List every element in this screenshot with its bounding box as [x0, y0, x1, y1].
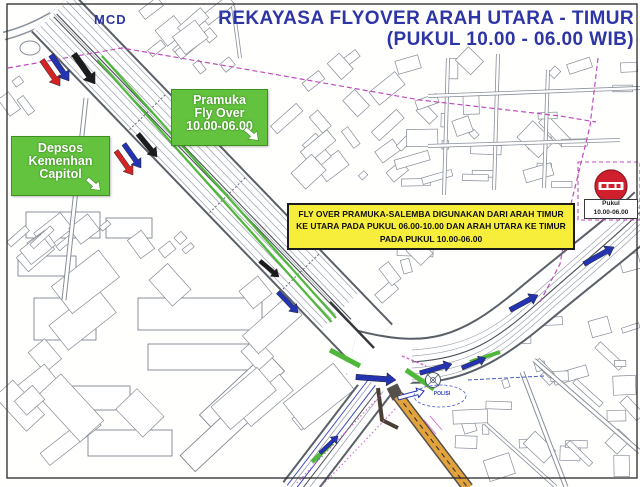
building-outline: [607, 410, 626, 421]
building-outline: [358, 171, 367, 180]
building-outline: [12, 76, 24, 87]
southeast-arrow-icon: [83, 175, 103, 193]
building-outline: [614, 360, 626, 366]
building-outline: [455, 435, 477, 448]
building-outline: [369, 72, 405, 106]
no-entry-caption: Pukul 10.00-06.00: [584, 199, 638, 219]
building-outline: [174, 231, 187, 244]
building-outline: [395, 55, 421, 75]
map-line: [522, 372, 566, 487]
building-outline: [88, 430, 172, 456]
building-outline: [463, 174, 489, 181]
building-outline: [17, 96, 35, 116]
building-outline: [309, 110, 331, 133]
building-outline: [588, 316, 612, 337]
building-outline: [548, 66, 560, 78]
building-outline: [455, 47, 483, 75]
southeast-arrow-icon: [241, 125, 261, 143]
building-outline: [193, 60, 206, 74]
map-line: [428, 88, 640, 96]
building-outline: [148, 40, 166, 57]
building-outline: [0, 92, 21, 116]
building-outline: [182, 243, 194, 254]
building-outline: [343, 90, 370, 117]
building-outline: [394, 150, 430, 169]
polisi-map-label: POLISI: [420, 391, 464, 397]
mcd-map-label: MCD: [94, 12, 127, 27]
building-outline: [614, 455, 630, 476]
building-outline: [302, 71, 325, 92]
building-outline: [613, 375, 636, 395]
pramuka-flyover-callout: Pramuka Fly Over 10.00-06.00: [171, 89, 268, 146]
building-outline: [371, 109, 404, 140]
building-outline: [483, 453, 515, 482]
building-outline: [463, 94, 479, 115]
building-outline: [379, 262, 401, 286]
building-outline: [148, 344, 260, 370]
building-outline: [271, 103, 303, 133]
traffic-engineering-map: REKAYASA FLYOVER ARAH UTARA - TIMUR (PUK…: [0, 0, 640, 487]
building-outline: [552, 181, 572, 187]
building-outline: [158, 241, 176, 258]
building-outline: [621, 62, 638, 72]
building-outline: [139, 0, 164, 19]
no-entry-caption-line2: 10.00-06.00: [585, 209, 637, 218]
building-outline: [422, 169, 453, 184]
building-outline: [486, 401, 512, 410]
map-title-line2: (PUKUL 10.00 - 06.00 WIB): [218, 29, 634, 50]
building-outline: [220, 57, 236, 72]
no-entry-sign-group: [595, 170, 627, 202]
building-outline: [453, 409, 488, 424]
map-line: [430, 416, 442, 430]
building-outline: [400, 258, 412, 274]
building-outline: [502, 379, 510, 389]
map-title-line1: REKAYASA FLYOVER ARAH UTARA - TIMUR: [218, 8, 634, 29]
building-outline: [567, 57, 593, 74]
flyover-usage-notice: FLY OVER PRAMUKA-SALEMBA DIGUNAKAN DARI …: [287, 203, 575, 250]
no-entry-caption-line1: Pukul: [585, 200, 637, 209]
building-outline: [341, 127, 360, 148]
building-outline: [138, 298, 262, 330]
building-outline: [375, 280, 399, 303]
depsos-kemenhan-capitol-callout: Depsos Kemenhan Capitol: [11, 136, 110, 196]
building-outline: [573, 379, 603, 407]
map-title: REKAYASA FLYOVER ARAH UTARA - TIMUR (PUK…: [218, 8, 634, 51]
